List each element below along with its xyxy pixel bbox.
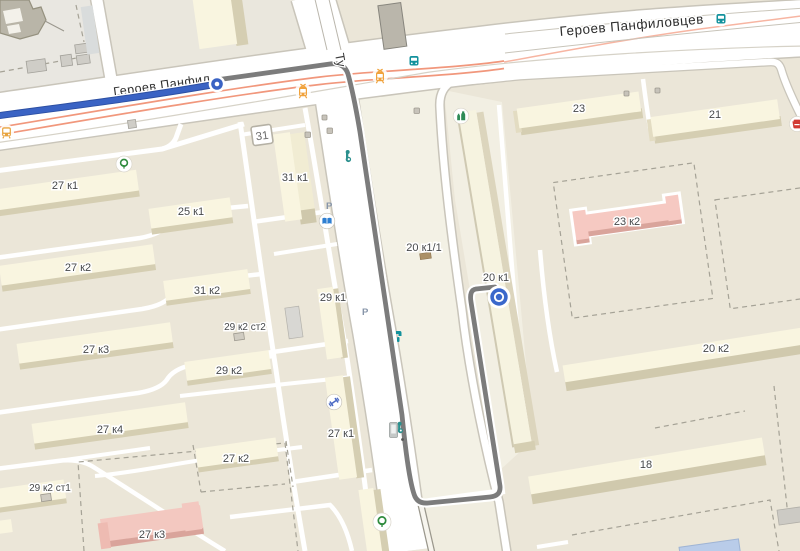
svg-text:23 к2: 23 к2	[614, 216, 640, 228]
svg-text:31 к2: 31 к2	[194, 285, 220, 297]
svg-text:27 к1: 27 к1	[328, 428, 354, 440]
svg-text:27 к3: 27 к3	[83, 344, 109, 356]
svg-text:31 к1: 31 к1	[282, 172, 308, 184]
svg-text:20 к1/1: 20 к1/1	[406, 242, 441, 254]
svg-text:Р: Р	[362, 307, 369, 318]
svg-text:23: 23	[573, 103, 585, 115]
svg-text:31: 31	[255, 130, 269, 144]
svg-text:27 к4: 27 к4	[97, 424, 123, 436]
svg-text:27 к2: 27 к2	[65, 262, 91, 274]
svg-text:Р: Р	[326, 201, 333, 212]
svg-text:20 к1: 20 к1	[483, 272, 509, 284]
svg-text:27 к3: 27 к3	[139, 529, 165, 541]
svg-text:20 к2: 20 к2	[703, 343, 729, 355]
svg-text:29 к2 ст1: 29 к2 ст1	[29, 483, 71, 494]
svg-text:25 к1: 25 к1	[178, 206, 204, 218]
svg-text:29 к1: 29 к1	[320, 292, 346, 304]
svg-text:29 к2: 29 к2	[216, 365, 242, 377]
svg-text:29 к2 ст2: 29 к2 ст2	[224, 322, 266, 333]
svg-text:27 к2: 27 к2	[223, 453, 249, 465]
svg-text:21: 21	[709, 109, 721, 121]
svg-text:27 к1: 27 к1	[52, 180, 78, 192]
svg-text:18: 18	[640, 459, 652, 471]
